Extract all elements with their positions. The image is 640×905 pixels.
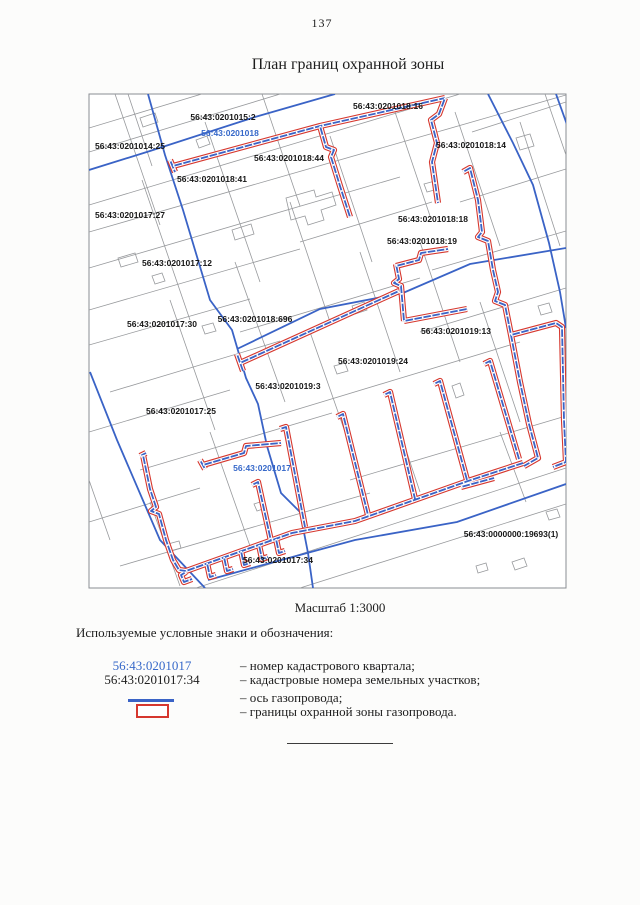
parcel-label: 56:43:0201018:696	[218, 314, 293, 324]
parcel-label: 56:43:0201018:16	[353, 101, 423, 111]
signature-line	[287, 743, 393, 744]
quarter-label: 56:43:0201017	[233, 463, 291, 473]
legend-zone-desc: – границы охранной зоны газопровода.	[240, 704, 600, 720]
quarter-label: 56:43:0201018	[201, 128, 259, 138]
parcel-label: 56:43:0201019:13	[421, 326, 491, 336]
parcel-label: 56:43:0201017:27	[95, 210, 165, 220]
pipeline-axis-symbol	[128, 699, 174, 702]
document-page: 137 План границ охранной зоны	[0, 0, 640, 905]
legend-heading: Используемые условные знаки и обозначени…	[76, 625, 333, 641]
parcel-label: 56:43:0201018:19	[387, 236, 457, 246]
parcel-label: 56:43:0201018:14	[436, 140, 506, 150]
cadastral-map: 56:43:0201015:2 56:43:0201018 56:43:0201…	[0, 0, 640, 905]
legend-parcel-number: 56:43:0201017:34	[92, 672, 212, 688]
parcel-label: 56:43:0201019:24	[338, 356, 408, 366]
parcel-label: 56:43:0201017:12	[142, 258, 212, 268]
parcel-label: 56:43:0201018:41	[177, 174, 247, 184]
parcel-label: 56:43:0201015:2	[190, 112, 255, 122]
parcel-label: 56:43:0201017:34	[243, 555, 313, 565]
legend-parcel-desc: – кадастровые номера земельных участков;	[240, 672, 600, 688]
parcel-label: 56:43:0201017:25	[146, 406, 216, 416]
parcel-label: 56:43:0201018:18	[398, 214, 468, 224]
scale-caption: Масштаб 1:3000	[180, 600, 500, 616]
parcel-label: 56:43:0000000:19693(1)	[464, 529, 559, 539]
parcel-label: 56:43:0201014:25	[95, 141, 165, 151]
protection-zone-symbol	[136, 704, 169, 718]
parcel-label: 56:43:0201018:44	[254, 153, 324, 163]
parcel-label: 56:43:0201019:3	[255, 381, 320, 391]
parcel-label: 56:43:0201017:30	[127, 319, 197, 329]
